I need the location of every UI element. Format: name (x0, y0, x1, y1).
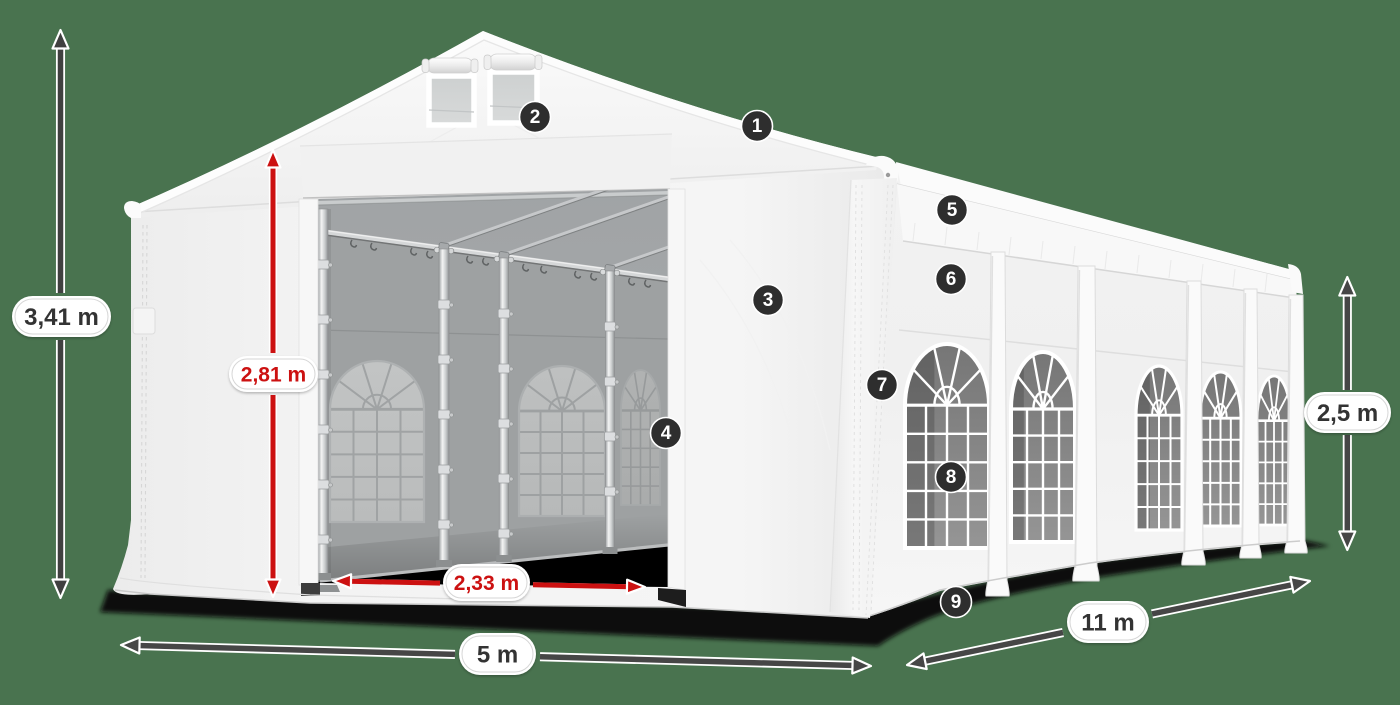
svg-text:8: 8 (946, 467, 957, 488)
svg-text:2,33 m: 2,33 m (454, 572, 519, 595)
svg-text:2: 2 (530, 107, 541, 128)
svg-text:7: 7 (877, 375, 888, 396)
svg-text:1: 1 (752, 116, 763, 137)
svg-text:11 m: 11 m (1081, 610, 1134, 637)
svg-text:5 m: 5 m (477, 642, 518, 669)
svg-text:5: 5 (947, 200, 958, 221)
svg-text:9: 9 (951, 592, 962, 613)
svg-text:3,41 m: 3,41 m (24, 304, 99, 331)
svg-text:4: 4 (661, 423, 672, 444)
svg-text:2,81 m: 2,81 m (241, 364, 306, 387)
svg-text:6: 6 (946, 269, 957, 290)
svg-text:3: 3 (763, 290, 774, 311)
svg-text:2,5 m: 2,5 m (1317, 400, 1378, 427)
